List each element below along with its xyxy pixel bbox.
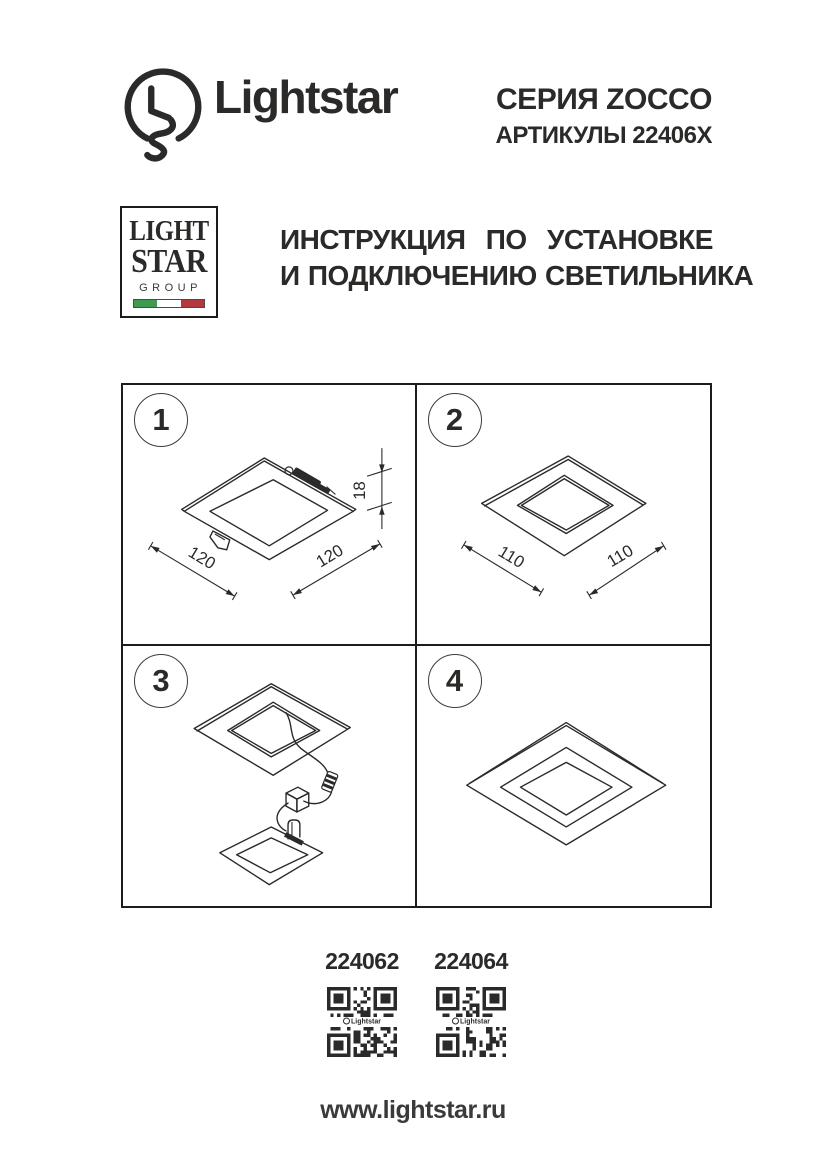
brand-wordmark: Lightstar [214,70,397,124]
flag-green [134,300,157,307]
qr-code: Lightstar [436,987,506,1057]
website-url: www.lightstar.ru [0,1096,826,1125]
step-2-badge: 2 [428,393,482,447]
group-logo-star: STAR [122,245,216,279]
dimension-right: 110 [586,541,665,599]
dimension-left: 110 [461,541,543,596]
flag-red [181,300,204,307]
qr-code: Lightstar [327,987,397,1057]
article-block: 224062 Lightstar [322,948,402,1057]
group-logo-group: GROUP [125,282,216,294]
step-3-badge: 3 [134,654,188,708]
qr-brand-label: Lightstar [436,1018,506,1027]
step-4-cell: 4 [417,646,711,907]
mounting-tab-icon [210,531,230,550]
group-logo-light: LIGHT [122,217,216,246]
dimension-left: 120 [148,542,237,600]
italian-flag-bar [133,299,205,308]
article-block: 224064 Lightstar [431,948,511,1057]
articles-title: АРТИКУЛЫ 22406X [496,122,712,150]
title-line-2: И ПОДКЛЮЧЕНИЮ СВЕТИЛЬНИКА [280,260,720,292]
article-code: 224062 [322,948,402,975]
qr-brand-label: Lightstar [327,1018,397,1027]
dimension-height: 18 [350,448,392,529]
lightstar-bulb-icon [114,58,212,164]
dim-left-label: 120 [185,543,219,574]
page-title: ИНСТРУКЦИЯ ПО УСТАНОВКЕ И ПОДКЛЮЧЕНИЮ СВ… [280,224,720,292]
driver-box-icon [286,787,309,812]
step-1-cell: 1 [123,385,417,646]
title-line-1: ИНСТРУКЦИЯ ПО УСТАНОВКЕ [280,224,720,256]
article-code: 224064 [431,948,511,975]
lightstar-group-logo: LIGHT STAR GROUP [120,206,218,318]
dim-height-label: 18 [350,481,369,500]
cable-connector-icon [321,770,338,792]
dimension-right: 120 [291,540,383,599]
step-1-badge: 1 [134,393,188,447]
series-title: СЕРИЯ ZOCCO [496,84,712,116]
step-4-badge: 4 [428,654,482,708]
instruction-grid: 1 [121,383,712,908]
instruction-sheet: Lightstar СЕРИЯ ZOCCO АРТИКУЛЫ 22406X LI… [0,0,826,1168]
step-2-cell: 2 110 110 [417,385,711,646]
series-block: СЕРИЯ ZOCCO АРТИКУЛЫ 22406X [496,84,712,150]
flag-white [157,300,180,307]
step-3-cell: 3 [123,646,417,907]
